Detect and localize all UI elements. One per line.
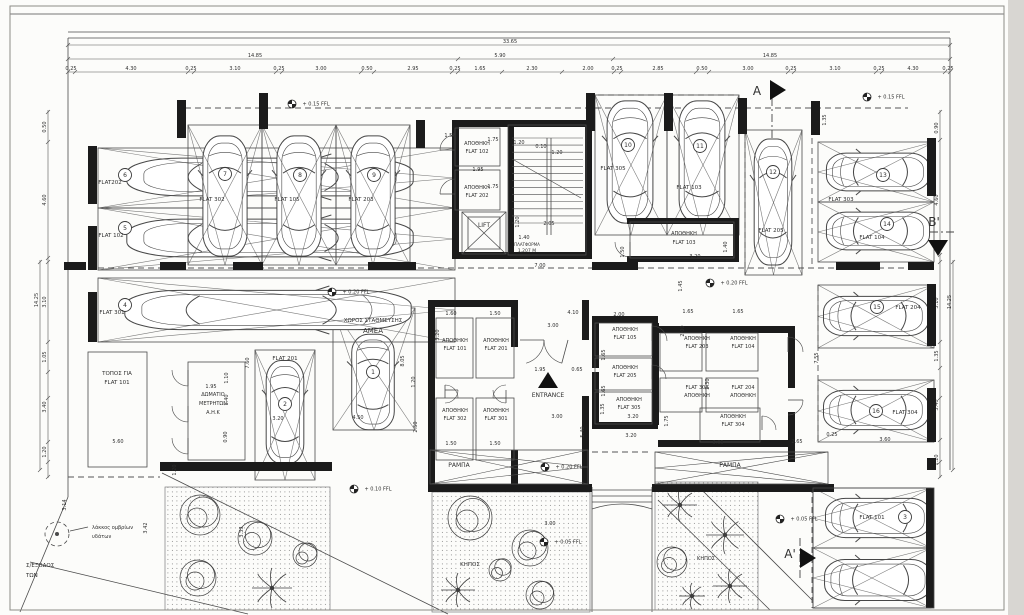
wall: [664, 93, 673, 131]
section-marker-Bp: B': [928, 215, 948, 256]
spot-flat-label: FLAT 101: [859, 515, 884, 521]
annotation-text: 1.20: [515, 216, 521, 227]
annotation-text: 3.60: [879, 437, 890, 443]
dim-label: 1.20: [42, 446, 48, 457]
spot-flat-label: FLAT 301: [99, 310, 124, 316]
spot-number: 5: [123, 225, 127, 232]
wall: [788, 333, 795, 388]
annotation-text: ΤΩΝ: [25, 573, 38, 579]
annotation-text: ΑΠΟΘΗΚΗ: [483, 408, 509, 414]
car-icon: [198, 136, 252, 256]
annotation-text: ΠΛΑΤΦΟΡΜΑ: [514, 242, 540, 247]
landscape-layer: [165, 482, 758, 612]
dim-label: 1.35: [934, 350, 940, 361]
annotation-text: ΡΑΜΠΑ: [448, 462, 470, 469]
annotation-text: 7.55: [814, 352, 820, 363]
level-marker: + 0.10 FFL: [350, 485, 392, 493]
level-label: + 0.20 FFL: [720, 281, 747, 287]
annotation-text: 1.35: [822, 114, 828, 125]
annotation-text: ΑΠΟΘΗΚΗ: [442, 338, 468, 344]
annotation-text: FLAT 101: [104, 380, 129, 386]
annotation-text: ΑΠΟΘΗΚΗ: [464, 141, 490, 147]
annotation-text: 3.33: [239, 526, 245, 537]
parking-spot-15: 15FLAT 204: [818, 285, 934, 348]
parking-spot-2: 2FLAT 201: [255, 350, 315, 480]
annotation-text: ΑΠΟΘΗΚΗ: [442, 408, 468, 414]
annotation-text: ΚΗΠΟΣ: [697, 556, 715, 562]
wall: [627, 218, 739, 224]
spot-number: 7: [223, 171, 227, 178]
annotation-text: ΑΠΟΘΗΚΗ: [684, 393, 710, 399]
annotation-text: ΑΠΟΘΗΚΗ: [612, 327, 638, 333]
rainwater-pit: [45, 522, 69, 546]
dim-label: 14.85: [248, 53, 262, 59]
annotation-text: 1.95: [472, 167, 483, 173]
level-marker: + 0.20 FFL: [541, 463, 583, 471]
wall: [652, 323, 659, 425]
level-marker: + 0.20 FFL: [328, 288, 370, 296]
level-marker: + 0.15 FFL: [863, 93, 905, 101]
walkway-arc: [592, 504, 652, 509]
wall: [508, 127, 514, 255]
wall: [788, 412, 795, 462]
section-letter: A: [753, 84, 762, 98]
circle: [456, 588, 460, 592]
annotation-text: 0.10: [535, 144, 546, 150]
annotation-text: 3.20: [435, 329, 441, 340]
parking-spot-13: 13FLAT 303: [818, 142, 934, 203]
parking-spot-14: 14FLAT 104: [818, 202, 934, 262]
annotation-text: 1.50: [445, 441, 456, 447]
wall: [233, 262, 263, 270]
door-leaf: [562, 340, 568, 363]
wall: [927, 138, 936, 196]
spot-flat-label: FLAT 102: [98, 233, 123, 239]
room-outline: [88, 352, 147, 467]
dim-label: 2.30: [526, 66, 537, 72]
level-label: + 0.15 FFL: [302, 102, 329, 108]
annotation-text: FLAT 105: [614, 335, 637, 341]
annotation-text: 1.50: [489, 441, 500, 447]
spot-number: 14: [883, 221, 891, 228]
spot-flat-label: FLAT 201: [272, 356, 297, 362]
lift-shaft: [462, 212, 506, 254]
car: [272, 136, 326, 256]
wall: [811, 101, 820, 135]
garden-area: [432, 492, 590, 612]
annotation-text: 1.65: [601, 349, 607, 360]
annotation-text: ENTRANCE: [532, 392, 565, 399]
dim-label: 3.40: [42, 401, 48, 412]
spot-number: 13: [879, 172, 887, 179]
parking-spot-11: 11FLAT 103: [667, 95, 739, 235]
spot-number: 10: [624, 142, 632, 149]
room-outline: [455, 128, 500, 166]
circle: [678, 503, 682, 507]
annotation-text: Σ/ΕΞΟΔΟΣ: [26, 563, 55, 569]
dim-label: 14.25: [34, 293, 40, 307]
door-swing-arc: [172, 406, 188, 422]
dimension-chain: 0.254.300.253.100.253.000.502.950.251.65…: [65, 66, 953, 74]
annotation-text: 1.55: [444, 133, 455, 139]
level-label: + 0.20 FFL: [555, 465, 582, 471]
annotation-text: 3.20: [689, 254, 700, 260]
annotation-text: 7.00: [534, 263, 545, 269]
spot-flat-label: FLAT 304: [892, 410, 918, 416]
annotation-text: FLAT 204: [732, 385, 755, 391]
wall: [627, 256, 739, 262]
annotation-text: FLAT 102: [466, 149, 489, 155]
car: [346, 136, 400, 256]
car-icon: [346, 136, 400, 256]
annotation-text: FLAT 205: [614, 373, 637, 379]
ramp-slope-line: [655, 468, 828, 484]
car-icon: [272, 136, 326, 256]
parking-spot: [813, 548, 931, 608]
spot-flat-label: FLAT 105: [274, 197, 300, 203]
annotation-text: FLAT 304: [722, 422, 745, 428]
annotation-text: ΚΗΠΟΣ: [460, 562, 480, 568]
parking-spot-12: 12FLAT 205: [745, 130, 802, 275]
car-icon: [262, 360, 308, 463]
annotation-text: 1.65: [732, 309, 743, 315]
door-swing-arc: [172, 370, 188, 386]
annotation-text: ΔΩΜΑΤΙΟ: [201, 392, 225, 398]
level-label: + 0.15 FFL: [877, 95, 904, 101]
annotation-text: 2.65: [791, 439, 802, 445]
section-marker-Ap: A': [784, 547, 816, 568]
dim-label: 3.10: [829, 66, 840, 72]
door-swing-arc: [493, 390, 506, 403]
wall: [658, 440, 795, 447]
spot-number: 11: [696, 143, 704, 150]
annotation-text: 1.40: [518, 235, 529, 241]
car: [198, 136, 252, 256]
dimension-chain-vertical: 14.25: [34, 260, 42, 472]
wall: [836, 262, 880, 270]
circle: [723, 533, 727, 537]
annotation-text: 1.20: [172, 464, 178, 475]
annotation-text: FLAT 202: [466, 193, 489, 199]
entrance-arrow-icon: [538, 372, 558, 388]
spot-flat-label: FLAT 205: [758, 228, 784, 234]
wall: [908, 262, 934, 270]
annotation-text: ΑΠΟΘΗΚΗ: [720, 414, 746, 420]
annotation-text: ΑΠΟΘΗΚΗ: [464, 185, 490, 191]
wall: [259, 93, 268, 129]
annotation-text: 0.25: [826, 432, 837, 438]
spot-number: 4: [123, 302, 127, 309]
dim-label: 2.85: [652, 66, 663, 72]
dim-label: 0.25: [185, 66, 196, 72]
annotation-text: ΑΠΟΘΗΚΗ: [730, 393, 756, 399]
annotation-text: 1.20: [411, 376, 417, 387]
dim-label: 1.65: [474, 66, 485, 72]
annotation-text: FLAT 302: [444, 416, 467, 422]
wall: [368, 262, 416, 270]
annotation-text: ΑΠΟΘΗΚΗ: [612, 365, 638, 371]
car-icon: [824, 292, 929, 340]
wall: [177, 100, 186, 138]
wall: [160, 262, 186, 270]
door-swing-arc: [544, 340, 562, 363]
wall: [738, 98, 747, 134]
car: [824, 292, 929, 340]
annotation-text: ΑΠΟΘΗΚΗ: [483, 338, 509, 344]
dim-label: 4.60: [934, 194, 940, 205]
level-marker: + 0.05 FFL: [776, 515, 818, 523]
dim-label: 4.30: [125, 66, 136, 72]
level-label: + 0.05 FFL: [554, 540, 581, 546]
dim-label: 0.25: [449, 66, 460, 72]
garden-area: [655, 482, 758, 610]
annotation-text: 1.35: [600, 403, 606, 414]
wall: [592, 323, 599, 368]
annotation-text: LIFT: [478, 222, 490, 229]
annotation-text: 1.50: [620, 246, 626, 257]
annotation-text: 1.75: [664, 415, 670, 426]
wall: [582, 300, 589, 340]
wall: [658, 326, 795, 333]
annotation-text: 1.10: [224, 372, 230, 383]
annotation-text: ΜΕΤΡΗΤΩΝ: [199, 401, 227, 407]
annotation-text: 2.00: [680, 325, 686, 336]
spot-number: 3: [903, 514, 907, 521]
annotation-text: 3.00: [547, 323, 558, 329]
dim-label: 3.10: [42, 296, 48, 307]
wall: [927, 388, 936, 442]
spot-flat-label: FLAT 103: [676, 185, 702, 191]
annotation-text: 4.50: [352, 415, 363, 421]
spot-number: 2: [283, 401, 287, 408]
annotation-text: 3.14: [62, 499, 68, 510]
dim-label: 0.25: [273, 66, 284, 72]
level-marker: + 0.05 FFL: [540, 538, 582, 546]
annotation-text: FLAT 305: [618, 405, 641, 411]
dimension-chain: 33.65: [66, 39, 952, 47]
annotation-text: 3.00: [544, 521, 555, 527]
circle: [728, 584, 732, 588]
annotation-text: FLAT 301: [485, 416, 508, 422]
wall: [416, 120, 425, 148]
annotation-text: 1.40: [723, 241, 729, 252]
annotation-text: 1.65: [682, 309, 693, 315]
spot-number: 1: [371, 369, 375, 376]
dimension-chain-vertical: 14.25: [947, 260, 955, 472]
annotation-text: FLAT 103: [673, 240, 696, 246]
annotation-text: 1.75: [487, 184, 498, 190]
dim-label: 0.50: [361, 66, 372, 72]
annotation-text: 0.90: [223, 431, 229, 442]
floor-plan-svg: 33.6514.855.9014.850.254.300.253.100.253…: [0, 0, 1024, 615]
annotation-text: 5.60: [112, 439, 123, 445]
spot-number: 9: [372, 172, 376, 179]
parking-spot-4: 4FLAT 301: [98, 278, 455, 342]
dim-label: 14.85: [763, 53, 777, 59]
wall: [88, 292, 97, 342]
annotation-text: 2.30: [705, 378, 711, 389]
dim-label: 4.60: [42, 194, 48, 205]
dim-label: 3.10: [229, 66, 240, 72]
door-swing-arc: [445, 390, 458, 403]
section-arrow-icon: [928, 240, 948, 256]
car-icon: [825, 555, 932, 605]
wall: [592, 316, 658, 323]
spot-flat-label: FLAT 203: [348, 197, 374, 203]
spot-number: 6: [123, 172, 127, 179]
dim-label: 4.30: [907, 66, 918, 72]
ramp-slope-line: [655, 452, 828, 468]
dim-label: 14.25: [947, 295, 953, 309]
annotation-text: 1.95: [205, 384, 216, 390]
annotation-text: 1.20: [513, 140, 524, 146]
wall: [652, 484, 834, 492]
spot-number: 8: [298, 172, 302, 179]
dim-label: 5.90: [494, 53, 505, 59]
dim-label: 0.90: [934, 122, 940, 133]
annotation-text: FLAT 104: [732, 344, 755, 350]
car: [262, 360, 308, 463]
annotation-text: 0.65: [571, 367, 582, 373]
annotation-text: 3.20: [272, 416, 283, 422]
annotation-text: 3.00: [551, 414, 562, 420]
wall: [428, 307, 435, 485]
ramp: [655, 452, 828, 484]
wall: [927, 284, 936, 346]
annotation-text: 3.42: [143, 522, 149, 533]
spot-flat-label: FLAT 302: [199, 197, 224, 203]
annotation-text: ΡΑΜΠΑ: [719, 462, 741, 469]
door-swing-arc: [172, 438, 188, 454]
wall: [88, 146, 97, 204]
annotation-text: 1.45: [678, 280, 684, 291]
annotation-text: ΑΠΟΘΗΚΗ: [671, 231, 697, 237]
car: [825, 555, 932, 605]
dim-label: 0.25: [65, 66, 76, 72]
annotation-text: 1.50: [489, 311, 500, 317]
annotation-text: 3.20: [625, 433, 636, 439]
annotation-text: FLAT 101: [444, 346, 467, 352]
dim-label: 2.00: [582, 66, 593, 72]
parking-spot-3: 3FLAT 101: [813, 488, 931, 548]
annotation-text: 4.10: [567, 310, 578, 316]
door-swing-arc: [493, 385, 506, 398]
spot-number: 15: [873, 304, 881, 311]
wall: [428, 300, 518, 307]
spot-flat-label: FLAT202: [98, 180, 122, 186]
wall: [511, 307, 518, 347]
dim-label: 0.50: [696, 66, 707, 72]
annotation-text: 3.20: [627, 414, 638, 420]
spot-flat-label: FLAT 204: [895, 305, 921, 311]
stair-break-line: [514, 160, 581, 198]
wall: [592, 422, 658, 429]
wall: [160, 462, 332, 471]
circle: [690, 594, 694, 598]
dim-label: 0.25: [942, 66, 953, 72]
section-letter: A': [784, 547, 796, 561]
spot-flat-label: FLAT 104: [859, 235, 885, 241]
dim-label: 0.25: [785, 66, 796, 72]
door-swing-arc: [762, 416, 776, 430]
wall: [64, 262, 86, 270]
door-swing-arc: [445, 385, 458, 398]
wall: [452, 127, 459, 255]
circle: [270, 586, 274, 590]
dimension-chain-vertical: 0.504.603.101.053.401.20: [42, 110, 50, 479]
level-label: + 0.10 FFL: [364, 487, 391, 493]
annotation-text: ΤΟΠΟΣ ΓΙΑ: [101, 371, 132, 377]
annotation-text: 7.60: [245, 357, 251, 368]
dim-label: 3.00: [742, 66, 753, 72]
section-marker-A: A: [753, 80, 786, 100]
annotation-text: 8.05: [400, 355, 406, 366]
boundary-line: [70, 527, 88, 531]
section-letter: B': [928, 215, 940, 229]
pit-center: [55, 532, 59, 536]
level-marker: + 0.15 FFL: [288, 100, 330, 108]
section-arrow-icon: [800, 548, 816, 568]
annotation-text: 2.50: [413, 421, 419, 432]
boundary-line: [20, 497, 68, 612]
wall: [927, 458, 936, 470]
annotation-text: ΑΠΟΘΗΚΗ: [616, 397, 642, 403]
dim-label: 0.25: [873, 66, 884, 72]
annotation-text: 1.60: [445, 311, 456, 317]
annotation-text: ΑΠΟΘΗΚΗ: [730, 336, 756, 342]
wall: [926, 488, 934, 608]
level-marker: + 0.20 FFL: [706, 279, 748, 287]
wall: [592, 262, 638, 270]
dim-label: 2.95: [407, 66, 418, 72]
annotation-text: υδάτων: [92, 533, 111, 540]
dim-label: 3.00: [315, 66, 326, 72]
level-label: + 0.20 FFL: [342, 290, 369, 296]
parking-spot-10: 10FLAT 305: [595, 95, 667, 235]
wall: [88, 226, 97, 270]
dim-label: 0.25: [611, 66, 622, 72]
annotation-text: λάκκος ομβρίων: [92, 524, 133, 531]
annotation-text: FLAT 201: [485, 346, 508, 352]
section-arrow-icon: [770, 80, 786, 100]
level-label: + 0.05 FFL: [790, 517, 817, 523]
scanned-floor-plan-sheet: 33.6514.855.9014.850.254.300.253.100.253…: [0, 0, 1024, 615]
dim-label: 0.50: [42, 121, 48, 132]
dimension-chain: 14.855.9014.85: [66, 53, 952, 61]
spot-number: 12: [769, 169, 777, 176]
annotation-text: 5.40: [580, 426, 586, 437]
annotation-text: ΧΩΡΟΣ ΣΤΑΘΜΕΥΣΗΣ: [344, 318, 403, 324]
door-swing-arc: [526, 340, 544, 363]
annotation-text: 1.20: [551, 150, 562, 156]
annotation-text: 1.75: [487, 137, 498, 143]
annotation-text: 1,207 M: [518, 248, 536, 254]
annotation-text: 3.05: [712, 440, 723, 446]
annotation-text: ΑΠΟΘΗΚΗ: [684, 336, 710, 342]
wall: [592, 372, 599, 424]
annotation-text: 2.00: [613, 312, 624, 318]
annotation-text: FLAT 203: [686, 344, 709, 350]
dim-label: 1.05: [42, 351, 48, 362]
annotation-text: 1.40: [224, 394, 230, 405]
spot-flat-label: FLAT 305: [600, 166, 626, 172]
dim-label: 33.65: [503, 39, 517, 45]
annotation-text: 1.65: [601, 385, 607, 396]
wall: [428, 484, 592, 492]
annotation-text: 2.05: [543, 221, 554, 227]
annotation-text: 1.95: [534, 367, 545, 373]
annotation-text: Α.Η.Κ: [206, 410, 220, 416]
